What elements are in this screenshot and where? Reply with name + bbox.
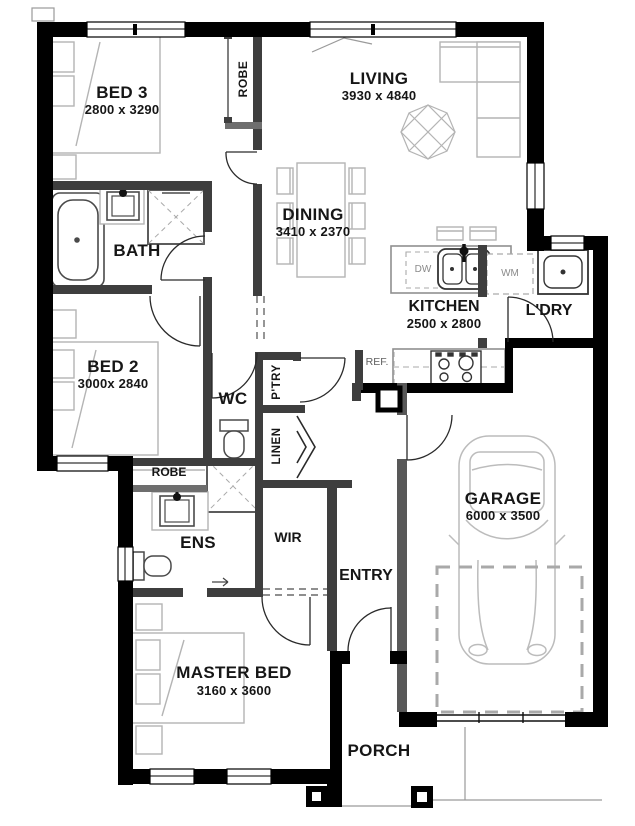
laundry-label: L'DRY	[526, 303, 573, 320]
floor-plan-drawing	[0, 0, 635, 826]
robe-ens-label: ROBE	[152, 466, 187, 479]
dishwasher-label: DW	[415, 264, 432, 275]
bath-vanity	[100, 186, 144, 224]
island-stools	[437, 227, 496, 240]
living-dims: 3930 x 4840	[342, 89, 417, 103]
linen-bifold-doors	[297, 416, 315, 478]
bed3-label: BED 3	[96, 84, 148, 102]
porch-label: PORCH	[348, 742, 411, 760]
wc-toilet	[220, 420, 248, 458]
ens-label: ENS	[180, 534, 216, 552]
ens-toilet	[133, 552, 171, 580]
bed3-door	[226, 152, 257, 184]
laundry-tub	[538, 250, 588, 294]
robe-bed3-sliding-door	[224, 33, 232, 123]
robe-bed3-label: ROBE	[236, 61, 250, 98]
ens-vanity	[152, 490, 208, 530]
living-label: LIVING	[350, 70, 408, 88]
pantry-door	[300, 358, 345, 402]
kitchen-niche	[378, 388, 400, 410]
pantry-label: P'TRY	[271, 364, 283, 399]
ens-flow-arrow	[212, 578, 228, 586]
bathtub	[52, 193, 104, 287]
master-door	[262, 597, 310, 645]
entry-door	[348, 607, 391, 651]
car	[449, 436, 565, 664]
wir-label: WIR	[274, 530, 301, 545]
wc-label: WC	[219, 390, 248, 408]
bed3-dims: 2800 x 3290	[85, 103, 160, 117]
garage-internal-door	[407, 415, 452, 460]
bed2-door	[150, 296, 200, 346]
dining-dims: 3410 x 2370	[276, 225, 351, 239]
linen-label: LINEN	[271, 428, 283, 465]
kitchen-dims: 2500 x 2800	[407, 317, 482, 331]
floor-plan: BED 3 2800 x 3290 ROBE LIVING 3930 x 484…	[0, 0, 635, 826]
garage-dims: 6000 x 3500	[466, 509, 541, 523]
tv-marker	[312, 38, 372, 52]
master-dims: 3160 x 3600	[197, 684, 272, 698]
living-rug	[401, 105, 455, 159]
garage-label: GARAGE	[465, 490, 541, 508]
cooktop	[431, 351, 481, 384]
master-label: MASTER BED	[176, 664, 291, 682]
dashed-openings	[257, 296, 327, 595]
bath-label: BATH	[113, 242, 160, 260]
entry-label: ENTRY	[339, 568, 393, 585]
bed2-label: BED 2	[87, 358, 139, 376]
fridge-label: REF.	[366, 356, 389, 368]
dining-label: DINING	[282, 206, 343, 224]
washing-machine-label: WM	[501, 268, 519, 279]
kitchen-label: KITCHEN	[408, 299, 479, 316]
porch-edges	[317, 727, 602, 806]
bed2-dims: 3000x 2840	[78, 377, 149, 391]
meter-box	[32, 8, 54, 21]
bath-shower	[148, 190, 204, 244]
garage-door	[437, 712, 565, 723]
ens-shower	[207, 460, 259, 512]
